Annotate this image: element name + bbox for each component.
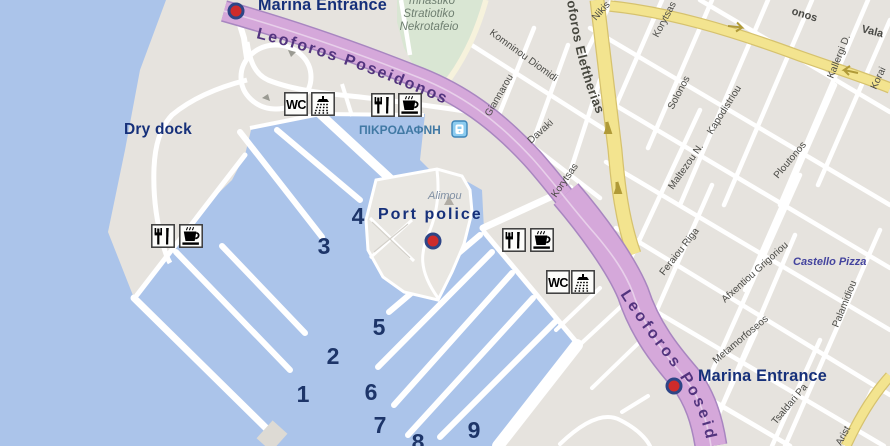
svg-text:Stratiotiko: Stratiotiko: [403, 8, 455, 20]
svg-text:9: 9: [468, 417, 481, 443]
svg-text:Castello Pizza: Castello Pizza: [793, 256, 866, 268]
svg-text:Marina Entrance: Marina Entrance: [698, 367, 827, 385]
svg-text:4: 4: [352, 203, 365, 229]
svg-text:Dry dock: Dry dock: [124, 121, 192, 138]
svg-text:8: 8: [412, 429, 425, 446]
svg-text:mnastiko: mnastiko: [409, 0, 456, 7]
svg-text:1: 1: [297, 381, 310, 407]
svg-text:Marina Entrance: Marina Entrance: [258, 0, 387, 14]
svg-text:5: 5: [373, 314, 386, 340]
svg-text:3: 3: [318, 233, 331, 259]
svg-text:ΠΙΚΡΟΔΑΦΝΗ: ΠΙΚΡΟΔΑΦΝΗ: [359, 123, 441, 137]
svg-text:2: 2: [327, 343, 340, 369]
svg-text:Port police: Port police: [378, 206, 483, 223]
svg-text:Alimou: Alimou: [427, 190, 462, 202]
svg-text:Nekrotafeio: Nekrotafeio: [400, 21, 459, 33]
svg-text:7: 7: [374, 412, 387, 438]
svg-text:6: 6: [365, 379, 378, 405]
